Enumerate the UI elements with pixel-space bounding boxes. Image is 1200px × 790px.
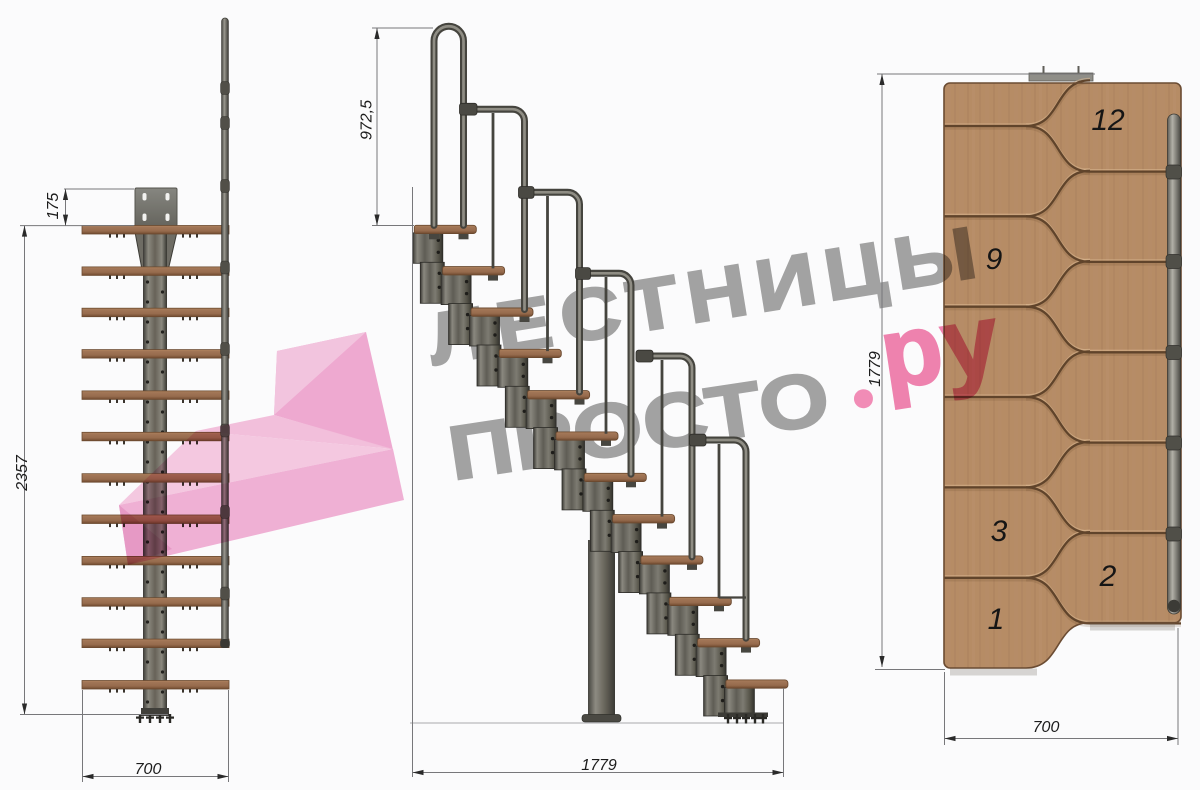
svg-text:3: 3 [991,515,1008,548]
svg-text:972,5: 972,5 [359,100,376,140]
svg-text:700: 700 [135,761,162,778]
svg-text:9: 9 [986,243,1003,276]
svg-text:2357: 2357 [14,454,31,492]
svg-text:1779: 1779 [581,757,617,774]
svg-text:12: 12 [1091,104,1125,137]
svg-text:2: 2 [1099,560,1117,593]
svg-text:700: 700 [1033,719,1060,736]
svg-text:175: 175 [45,193,62,220]
svg-text:1779: 1779 [867,351,884,387]
svg-text:1: 1 [988,603,1005,636]
